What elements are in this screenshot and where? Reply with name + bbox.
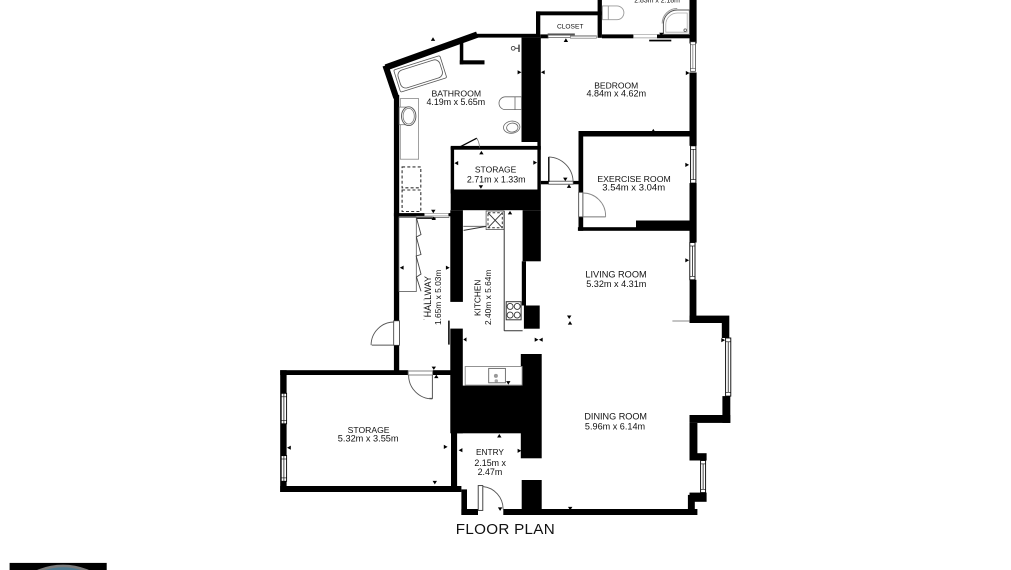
svg-text:FLOOR PLAN: FLOOR PLAN <box>456 521 555 538</box>
svg-text:4.84m x 4.62m: 4.84m x 4.62m <box>587 88 647 98</box>
svg-text:1.65m x 5.03m: 1.65m x 5.03m <box>433 270 443 325</box>
svg-text:ENTRY: ENTRY <box>476 447 504 457</box>
svg-text:2.83m x 2.18m: 2.83m x 2.18m <box>634 0 680 4</box>
svg-text:2.40m x 5.64m: 2.40m x 5.64m <box>483 270 493 325</box>
svg-text:STORAGE: STORAGE <box>475 165 517 175</box>
svg-text:HALLWAY: HALLWAY <box>423 276 433 317</box>
svg-text:KITCHEN: KITCHEN <box>473 280 483 316</box>
svg-text:DINING ROOM: DINING ROOM <box>584 411 647 421</box>
svg-text:2.71m x 1.33m: 2.71m x 1.33m <box>467 174 526 184</box>
svg-text:4.19m x 5.65m: 4.19m x 5.65m <box>426 97 485 107</box>
svg-text:5.32m x 3.55m: 5.32m x 3.55m <box>338 433 399 443</box>
svg-text:2.47m: 2.47m <box>478 467 503 477</box>
svg-text:5.32m x 4.31m: 5.32m x 4.31m <box>586 279 646 289</box>
svg-text:5.96m x 6.14m: 5.96m x 6.14m <box>585 422 645 432</box>
svg-text:CLOSET: CLOSET <box>557 24 583 31</box>
svg-text:3.54m x 3.04m: 3.54m x 3.04m <box>602 182 665 193</box>
